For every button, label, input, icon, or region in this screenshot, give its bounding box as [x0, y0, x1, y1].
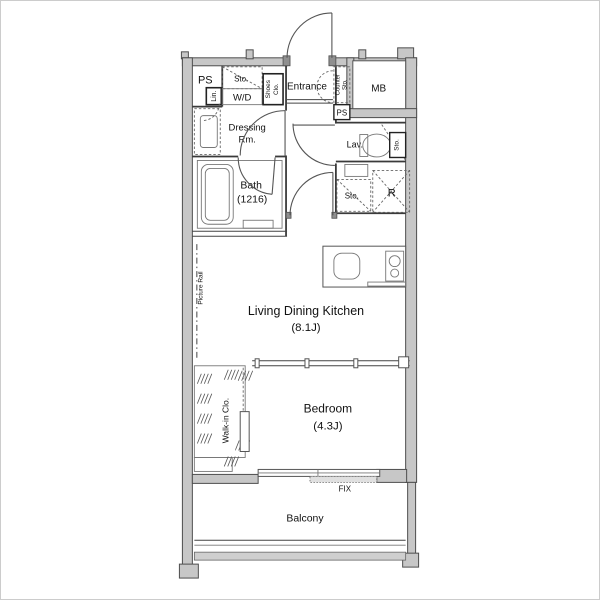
bathtub [201, 164, 233, 224]
entrance-door-swing [287, 13, 332, 58]
ps-left-label: PS [198, 75, 213, 87]
meter-box: MB [353, 61, 406, 109]
bedroom: Bedroom (4.3J) [304, 402, 353, 433]
counter-storage-label-2: Sto. [342, 79, 348, 90]
ldk-door-swing [290, 172, 333, 215]
balcony-railing [194, 552, 405, 560]
bedroom-partition [252, 357, 409, 368]
washer-dryer-label: W/D [233, 93, 252, 104]
bathroom: Bath (1216) [197, 157, 282, 228]
meter-box-label: MB [371, 84, 386, 95]
toilet [363, 134, 391, 157]
fix-window [310, 476, 377, 482]
fix-window-label: FIX [339, 484, 352, 493]
lavatory-label: Lav. [347, 140, 363, 150]
balcony-windows: FIX [258, 469, 380, 493]
hall-storage-label: Sto. [345, 191, 359, 200]
bath-counter [243, 220, 273, 228]
balcony: Balcony [194, 513, 405, 560]
lavatory-door-swing [293, 124, 335, 166]
entrance-label: Entrance [287, 82, 327, 93]
hall-storage: Sto. [337, 179, 371, 211]
bedroom-label-2: (4.3J) [313, 421, 342, 433]
refrigerator-label: R [388, 187, 396, 199]
bath-label-2: (1216) [237, 194, 267, 205]
storage-above-wd-label: Sto. [234, 75, 248, 84]
ps-right-label: PS [337, 109, 348, 118]
walk-in-closet-label: Walk-in Clo. [221, 398, 231, 443]
ps-left-room: PS [198, 75, 213, 87]
wic-door-panel [240, 412, 249, 452]
entrance-area: Entrance [287, 71, 333, 103]
shoes-closet-label-2: Clo. [273, 83, 280, 95]
kitchen-counter [323, 246, 406, 287]
dressing-room: Dressing Rm. [194, 109, 285, 156]
balcony-label: Balcony [286, 513, 324, 524]
washbasin [200, 116, 217, 148]
lavatory-cabinet [345, 164, 368, 176]
shoes-closet: Shoes Clo. [263, 74, 283, 105]
walk-in-closet: Walk-in Clo. [194, 366, 252, 472]
shoes-closet-label-1: Shoes [265, 80, 272, 98]
bedroom-label-1: Bedroom [304, 402, 353, 416]
lavatory-room: Lav. Sto. [293, 124, 406, 177]
ldk-label-1: Living Dining Kitchen [248, 304, 364, 318]
ldk-door [290, 172, 333, 215]
refrigerator-space: R [373, 170, 410, 212]
picture-rail-label: Picture Rail [197, 272, 204, 305]
ps-right-room: PS [334, 105, 350, 120]
counter-storage-label-1: Counter [335, 74, 341, 95]
ldk-label-2: (8.1J) [291, 322, 320, 334]
floorplan-image: PS Lin. Sto. W/D Shoes Clo. Entrance Cou… [0, 0, 600, 600]
washer-dryer-closet: Sto. W/D [222, 67, 262, 105]
floorplan-svg: PS Lin. Sto. W/D Shoes Clo. Entrance Cou… [1, 1, 599, 599]
linen-label: Lin. [211, 91, 218, 102]
lavatory-storage-label: Sto. [394, 139, 401, 151]
